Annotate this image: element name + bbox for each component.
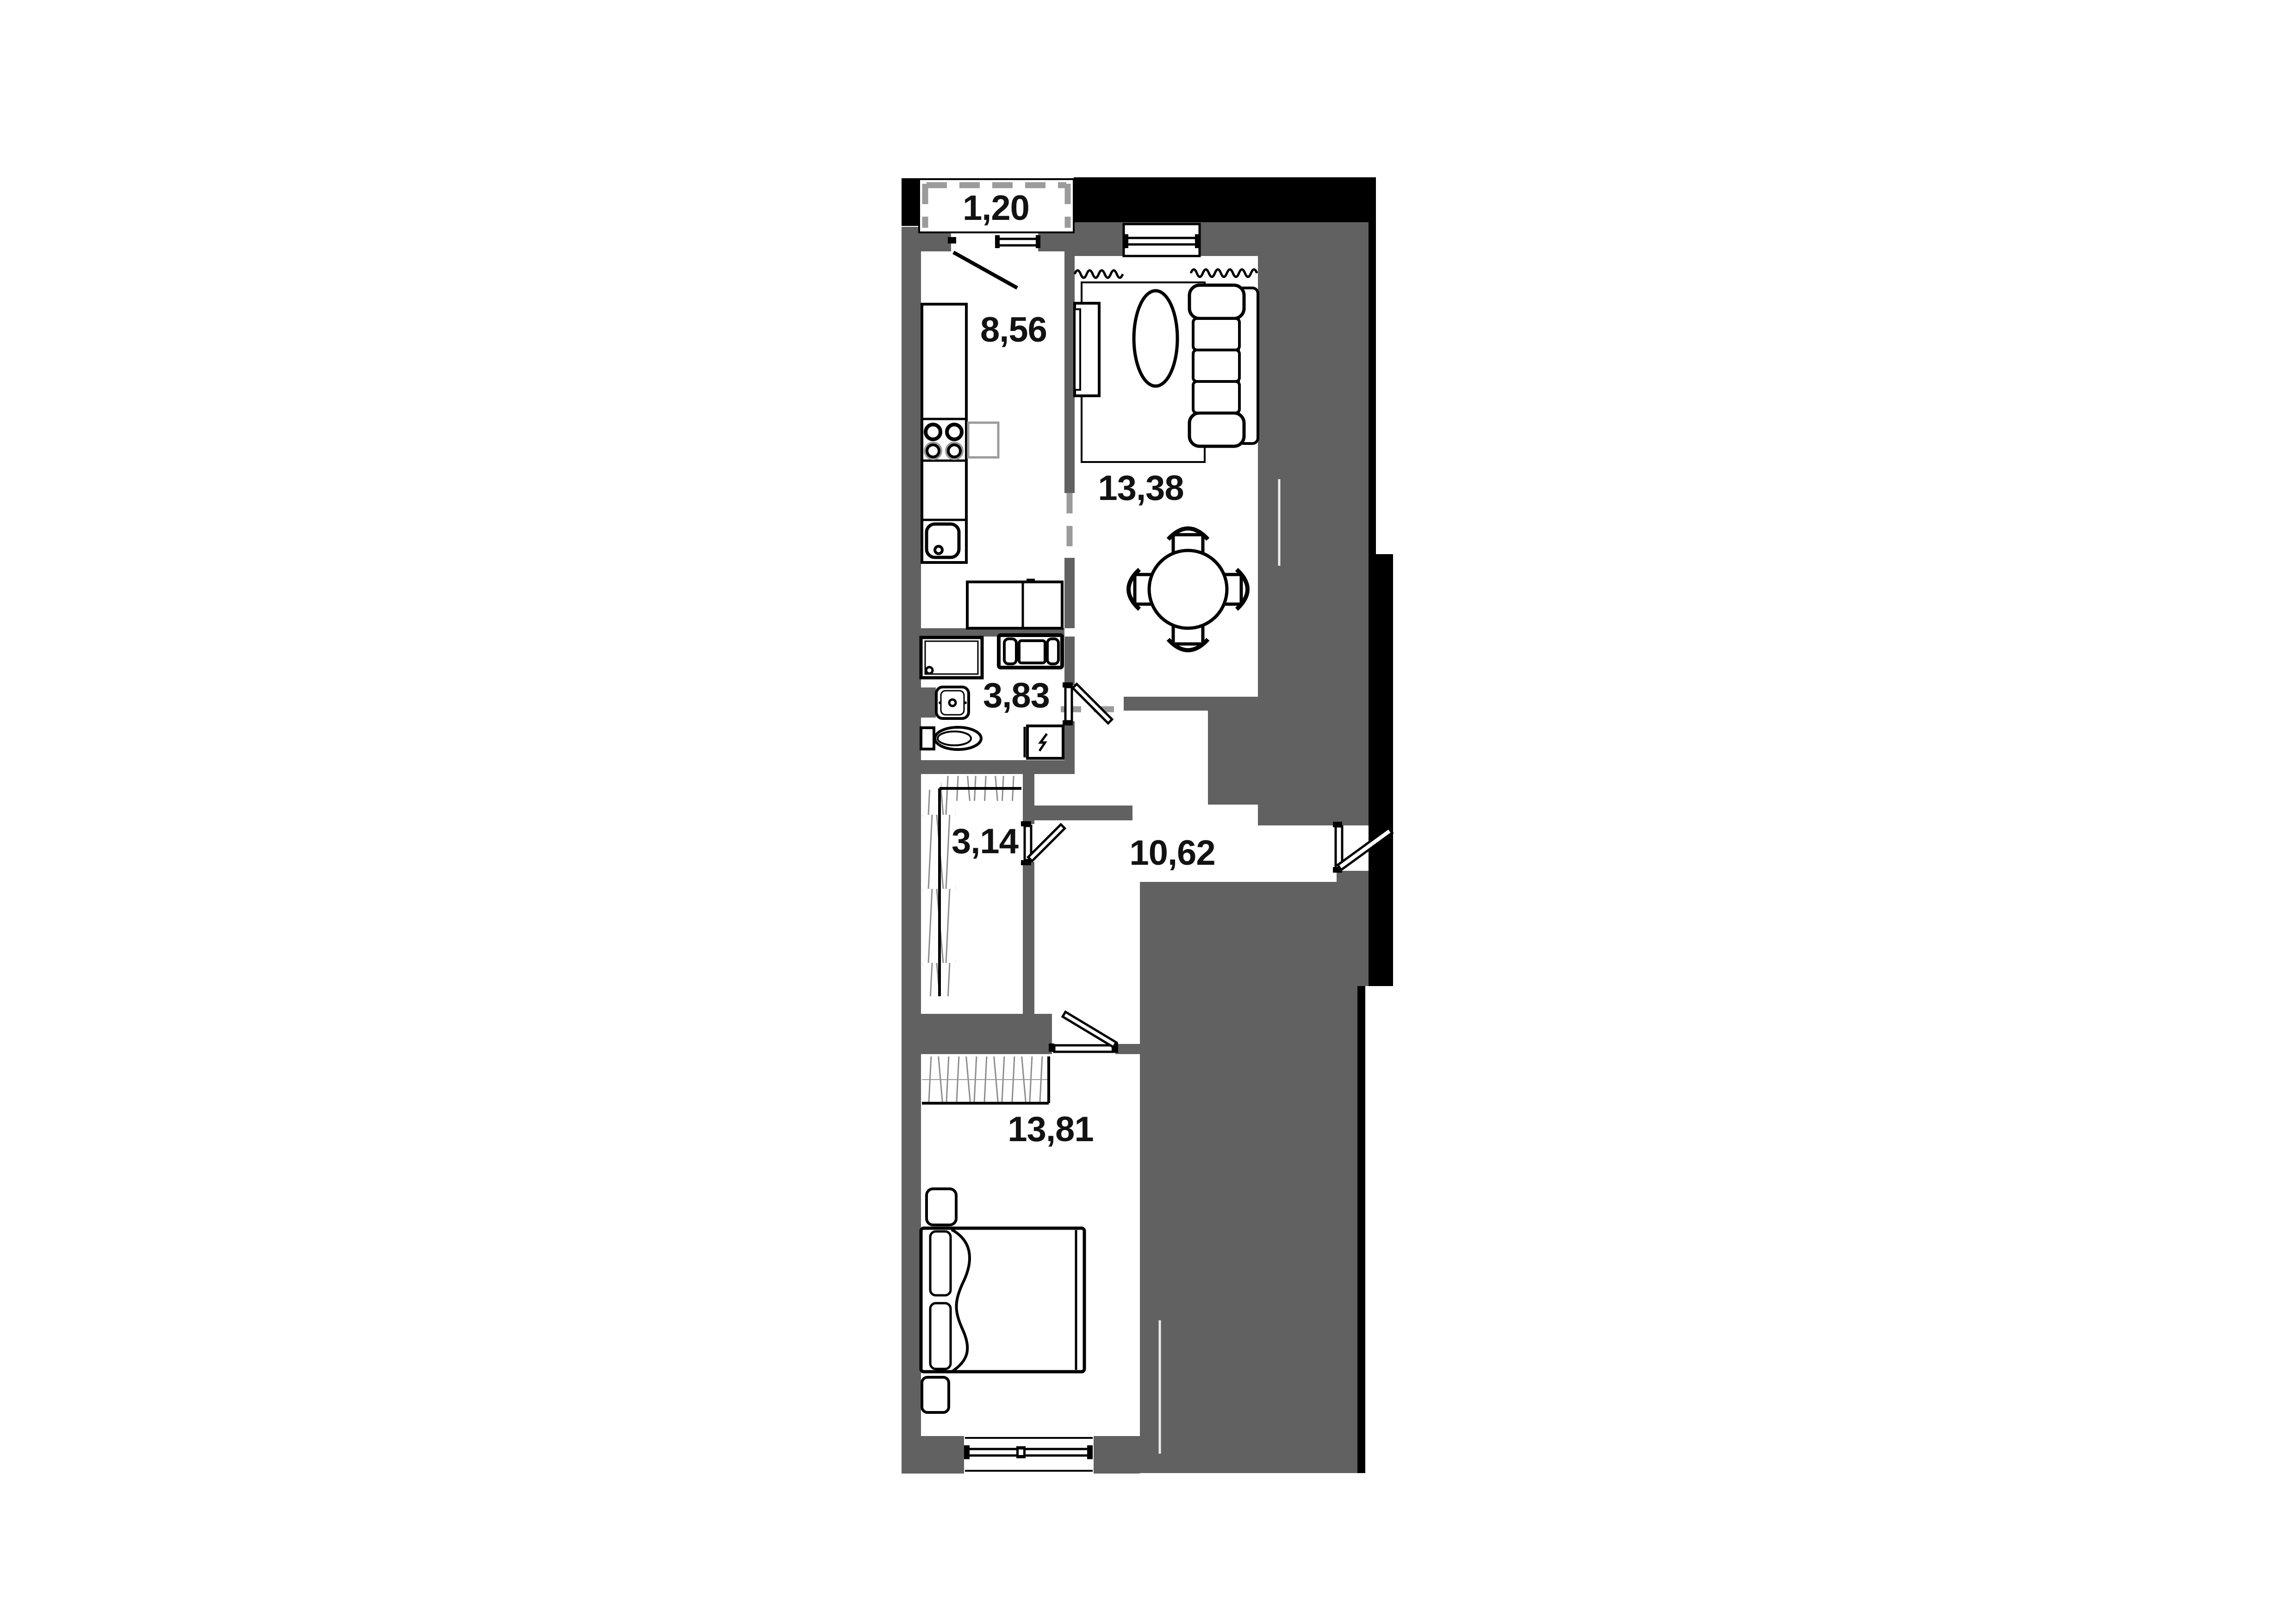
pillow-icon xyxy=(930,1231,951,1295)
living-area-label: 13,38 xyxy=(1098,468,1183,508)
wall-pier xyxy=(920,687,936,718)
bathroom-sink-icon xyxy=(936,687,969,718)
counter-mark xyxy=(1027,579,1035,583)
drain-icon xyxy=(926,667,933,674)
bedroom-area-label: 13,81 xyxy=(1008,1110,1093,1149)
wardrobe-area-label: 3,14 xyxy=(952,822,1019,861)
shower-icon xyxy=(921,637,982,678)
door-hinge-icon xyxy=(1063,682,1073,687)
hallway-area-label: 10,62 xyxy=(1129,833,1215,873)
room-hallway-entry xyxy=(1258,825,1337,882)
kitchen-area-label: 8,56 xyxy=(980,310,1047,350)
living-window xyxy=(1124,224,1200,256)
bathroom-cabinet xyxy=(999,635,1062,668)
window-cap-icon xyxy=(1195,234,1200,248)
sofa-seat xyxy=(1193,381,1239,413)
door-frame-icon xyxy=(1065,687,1072,721)
kitchen-side-table xyxy=(968,423,998,457)
nightstand xyxy=(922,1377,949,1412)
kitchen-counter-bottom xyxy=(967,582,1062,628)
coffee-table-oval xyxy=(1134,291,1177,386)
tv-icon xyxy=(1075,309,1080,390)
bathroom-area-label: 3,83 xyxy=(983,676,1050,715)
room-hallway-corridor xyxy=(1075,709,1208,806)
toilet-icon xyxy=(921,727,981,750)
tv-stand xyxy=(1075,303,1099,396)
kitchen-sink-icon xyxy=(927,524,959,557)
door-hinge-icon xyxy=(1063,720,1073,725)
sofa-armrest xyxy=(1189,285,1244,319)
room-hallway-lower xyxy=(1034,820,1140,1045)
sofa-seat xyxy=(1193,350,1239,381)
door-hinge-icon xyxy=(1333,822,1342,827)
floor-plan-page: 1,20 8,56 xyxy=(0,0,2296,1624)
window-cap-icon xyxy=(964,1445,970,1459)
electric-boiler xyxy=(1025,726,1063,758)
balcony: 1,20 xyxy=(919,179,1074,232)
door-hinge-icon xyxy=(1049,1043,1054,1052)
nightstand xyxy=(927,1189,956,1225)
sofa xyxy=(1189,285,1258,446)
balcony-area-label: 1,20 xyxy=(963,188,1029,228)
pillow-icon xyxy=(930,1303,951,1369)
sofa-armrest xyxy=(1189,413,1244,446)
kitchen-window xyxy=(995,235,1040,248)
window-cap-icon xyxy=(1124,234,1128,248)
door-hinge-icon xyxy=(948,237,956,244)
window-cap-icon xyxy=(1036,235,1040,248)
built-in-closet xyxy=(922,1056,1049,1103)
double-bed xyxy=(921,1228,1084,1372)
dining-table xyxy=(1149,550,1227,628)
door-frame-icon xyxy=(1054,1045,1114,1052)
floor-plan-canvas: 1,20 8,56 xyxy=(0,0,2296,1624)
door-hinge-icon xyxy=(1021,821,1031,826)
sofa-seat xyxy=(1193,319,1239,350)
door-hinge-icon xyxy=(1021,860,1031,865)
window-cap-icon xyxy=(1087,1445,1093,1459)
window-cap-icon xyxy=(995,235,1000,248)
